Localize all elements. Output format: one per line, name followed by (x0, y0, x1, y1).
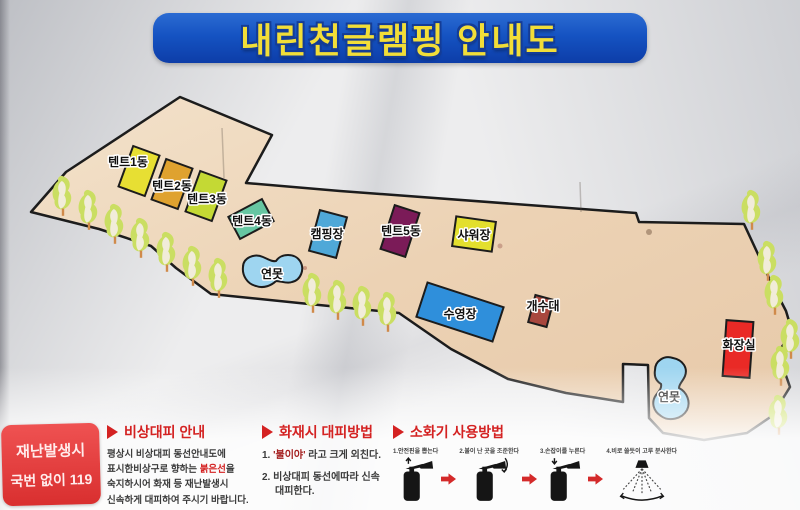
red-line-text: 붉은선 (200, 464, 226, 475)
red-arrow-icon (588, 473, 603, 485)
label-campsite: 캠핑장 (310, 226, 343, 241)
stain-mark (498, 244, 503, 249)
evacuation-line4: 신속하게 대피하여 주시기 바랍니다. (107, 493, 259, 508)
label-shower: 샤워장 (457, 227, 490, 242)
red-triangle-icon (107, 425, 118, 439)
red-triangle-icon (262, 425, 273, 439)
evacuation-line2: 표시한비상구로 향하는 붉은선을 (107, 462, 259, 477)
emergency-line1: 재난발생시 (16, 439, 86, 462)
red-arrow-icon (522, 473, 537, 485)
section-evacuation-header: 비상대피 안내 (107, 422, 259, 442)
label-tent2: 텐트2동 (152, 178, 192, 193)
fire-extinguisher-aim-icon (470, 457, 508, 503)
red-arrow-icon (441, 473, 456, 485)
label-pond-left: 연못 (261, 266, 283, 281)
fire-extinguisher-squeeze-icon (544, 457, 582, 503)
section-extinguisher-header: 소화기 사용방법 (393, 422, 723, 442)
section-extinguisher: 소화기 사용방법 1.안전핀을 뽑는다 (393, 422, 723, 503)
stain-mark (303, 266, 307, 270)
next-step-arrow (522, 472, 537, 490)
evacuation-line1: 평상시 비상대피 동선안내도에 (107, 447, 259, 462)
info-strip: 재난발생시 국번 없이 119 비상대피 안내 평상시 비상대피 동선안내도에 … (0, 420, 800, 510)
section-fire-title: 화재시 대피방법 (279, 422, 373, 442)
fire-extinguisher-pull-pin-icon (397, 457, 435, 503)
fire-extinguisher-spray-icon (614, 457, 670, 503)
section-fire-method: 화재시 대피방법 1. '불이야' 라고 크게 외친다. 2. 비상대피 동선에… (262, 422, 394, 500)
extinguisher-step-3: 3.손잡이를 누른다 (540, 446, 585, 503)
evacuation-line3: 숙지하시어 화재 등 재난발생시 (107, 477, 259, 492)
red-triangle-icon (393, 425, 404, 439)
next-step-arrow (441, 472, 456, 490)
fire-item1: 1. '불이야' 라고 크게 외친다. (262, 449, 394, 464)
emergency-line2: 국번 없이 119 (10, 468, 92, 490)
crease-mark (580, 182, 581, 212)
evacuation-body: 평상시 비상대피 동선안내도에 표시한비상구로 향하는 붉은선을 숙지하시어 화… (107, 447, 259, 508)
extinguisher-step-4: 4.비로 쓸듯이 고루 분사한다 (606, 446, 677, 503)
label-pool: 수영장 (443, 306, 476, 321)
section-evacuation-guide: 비상대피 안내 평상시 비상대피 동선안내도에 표시한비상구로 향하는 붉은선을… (107, 422, 259, 508)
label-sink: 개수대 (526, 299, 559, 313)
section-evacuation-title: 비상대피 안내 (124, 422, 205, 442)
label-tent1: 텐트1동 (108, 154, 148, 169)
glamping-info-sign: 내린천글램핑 안내도 (0, 0, 800, 510)
section-fire-header: 화재시 대피방법 (262, 422, 394, 442)
stain-mark (646, 229, 652, 235)
extinguisher-step-2: 2.불이 난 곳을 조준한다 (459, 446, 519, 503)
label-tent3: 텐트3동 (187, 191, 227, 206)
fire-shout-text: '불이야' (273, 450, 305, 461)
extinguisher-steps: 1.안전핀을 뽑는다 2.불이 난 (393, 446, 723, 503)
label-tent5: 텐트5동 (381, 223, 421, 238)
label-pond-right: 연못 (658, 389, 680, 404)
next-step-arrow (588, 472, 603, 490)
fire-item2: 2. 비상대피 동선에따라 신속 대피한다. (262, 471, 394, 500)
section-extinguisher-title: 소화기 사용방법 (410, 422, 504, 442)
extinguisher-step-1: 1.안전핀을 뽑는다 (393, 446, 438, 503)
label-tent4: 텐트4동 (232, 213, 272, 228)
emergency-number-box: 재난발생시 국번 없이 119 (1, 423, 101, 507)
label-toilet: 화장실 (722, 337, 755, 352)
